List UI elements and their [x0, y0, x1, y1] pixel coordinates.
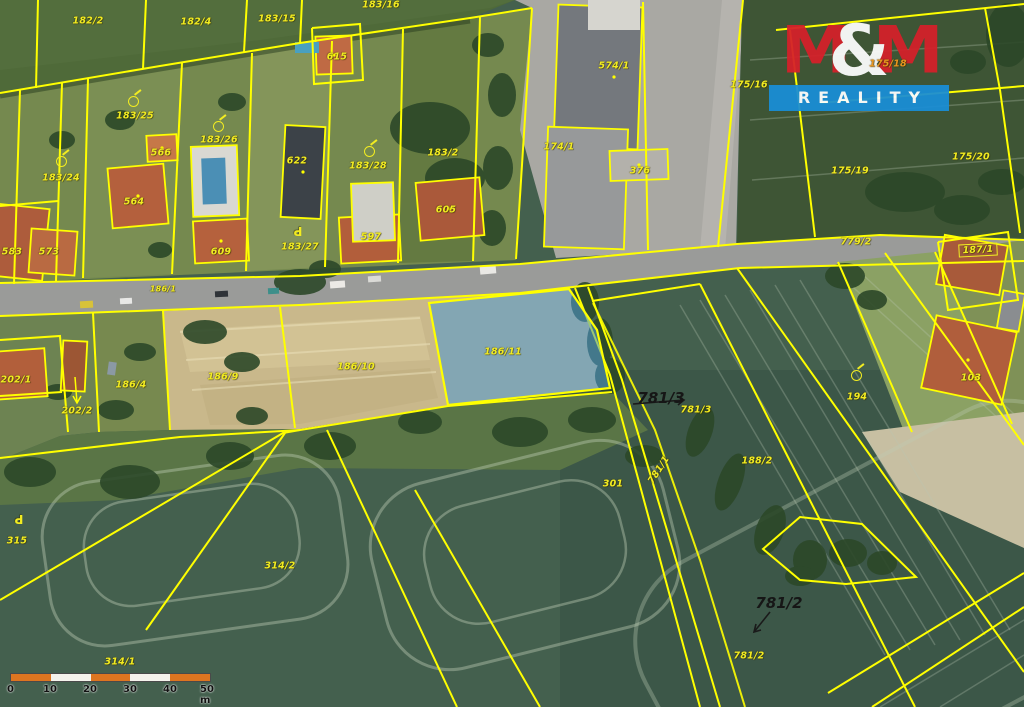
- scale-tick: 30: [123, 684, 137, 695]
- scale-bar: 0 10 20 30 40 50 m: [10, 673, 220, 698]
- scale-bar-graphic: [10, 673, 211, 682]
- logo-ampersand: &: [828, 22, 889, 80]
- mm-reality-logo: M & M REALITY: [769, 20, 949, 111]
- scale-tick: 0: [7, 684, 14, 695]
- scale-segment: [11, 674, 51, 681]
- scale-segment: [91, 674, 131, 681]
- map-canvas[interactable]: 182/2182/4183/15183/16615183/25183/26566…: [0, 0, 1024, 707]
- scale-tick: 40: [163, 684, 177, 695]
- scale-segment: [170, 674, 210, 681]
- annotation-781-2: 781/2: [755, 594, 802, 612]
- scale-segment: [130, 674, 170, 681]
- scale-tick: 20: [83, 684, 97, 695]
- scale-tick: 10: [43, 684, 57, 695]
- scale-tick: 50 m: [200, 684, 220, 706]
- annotation-781-3: 781/3: [637, 389, 684, 407]
- scale-segment: [51, 674, 91, 681]
- scale-tick-labels: 0 10 20 30 40 50 m: [10, 684, 220, 698]
- logo-mm-row: M & M: [769, 20, 949, 82]
